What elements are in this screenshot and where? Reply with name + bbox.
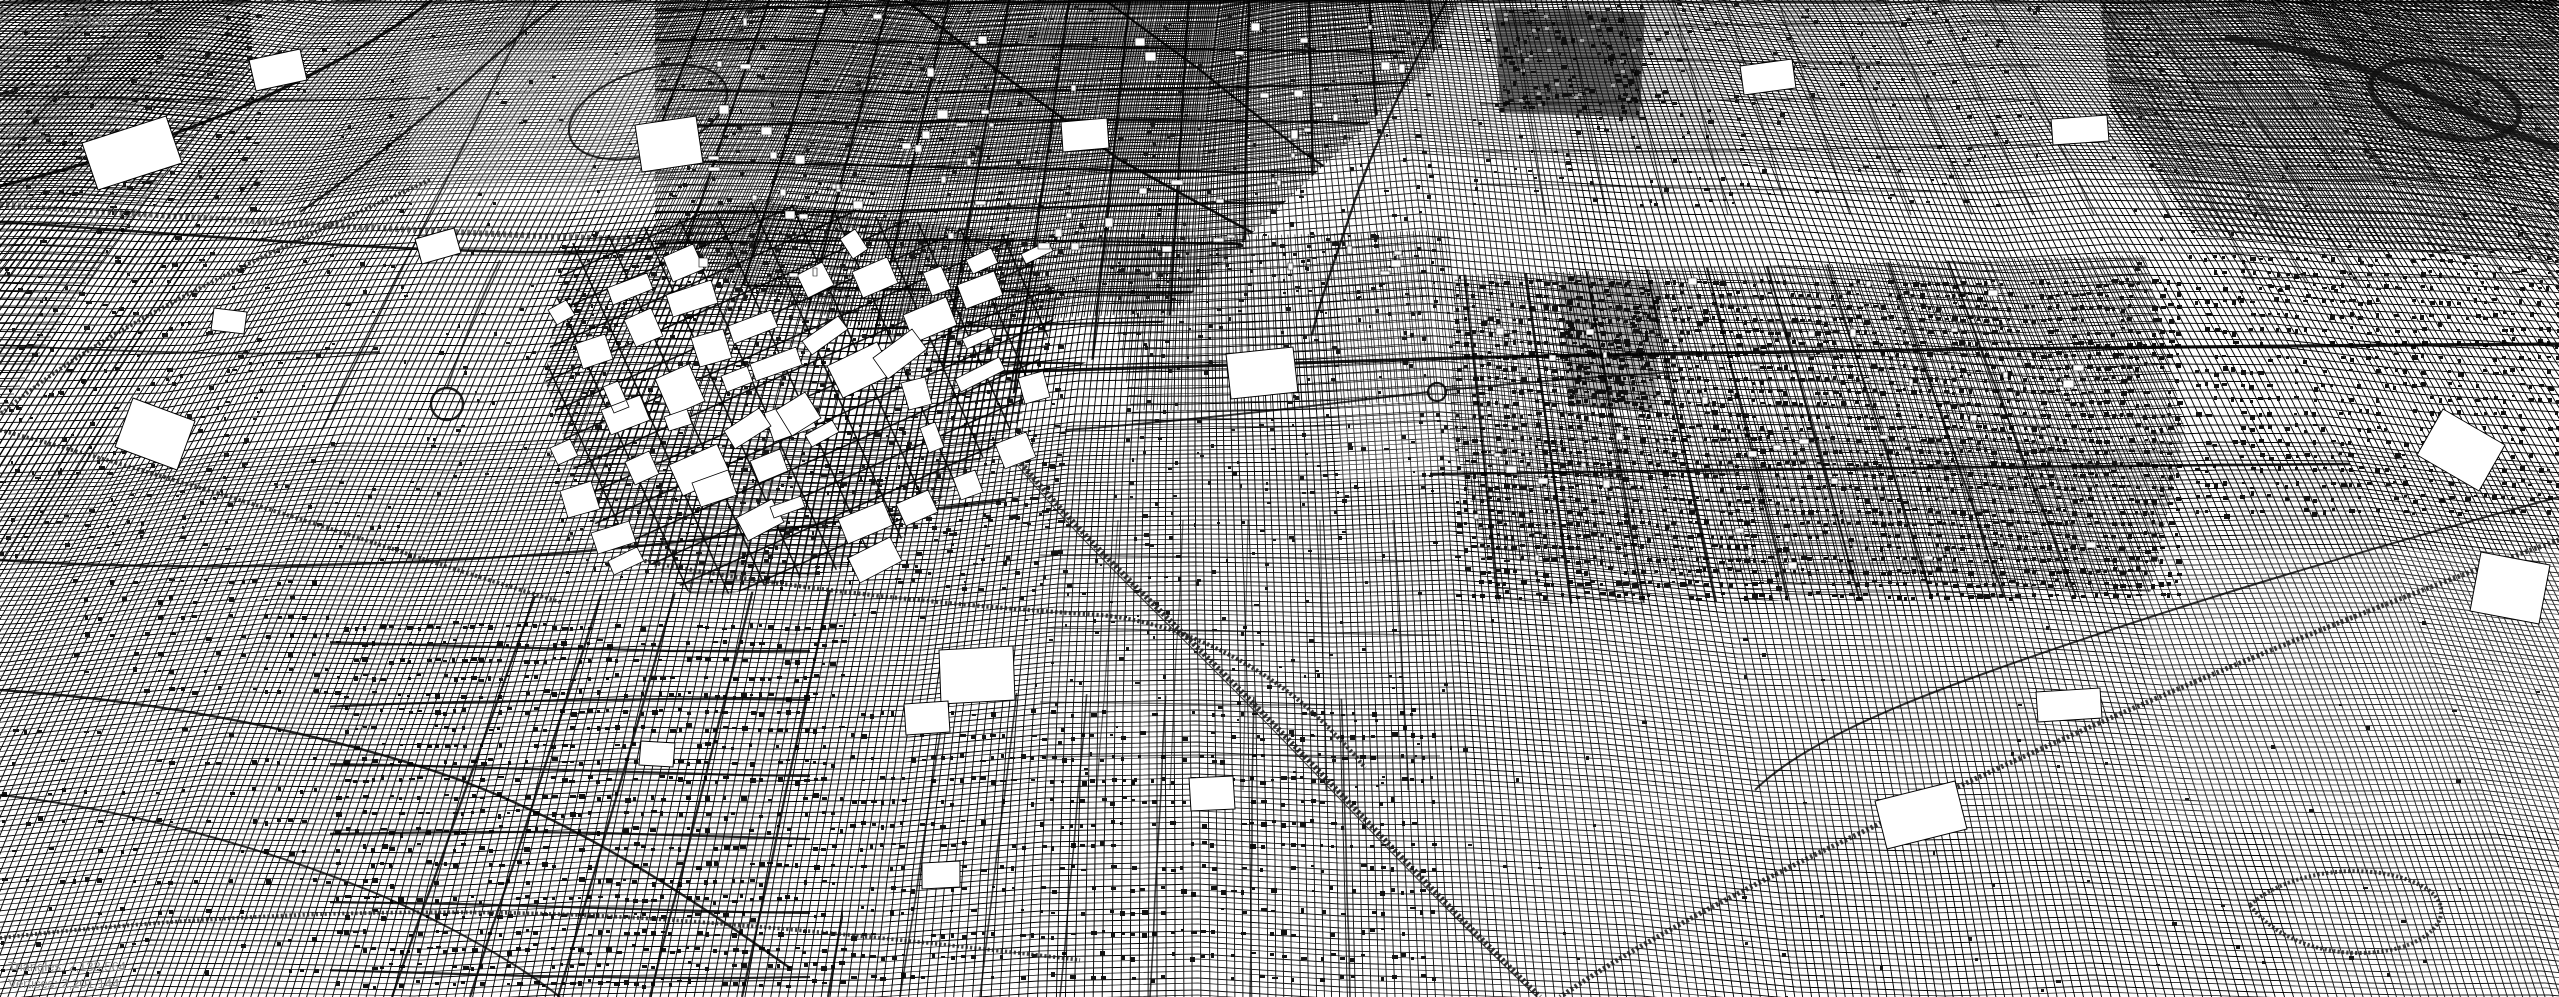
svg-text:Vertices: 2,201,144: Vertices: 2,201,144 — [8, 976, 119, 991]
svg-text:Triangles: 2,133,564: Triangles: 2,133,564 — [8, 959, 126, 974]
svg-text:Topology: Topology — [56, 12, 117, 29]
